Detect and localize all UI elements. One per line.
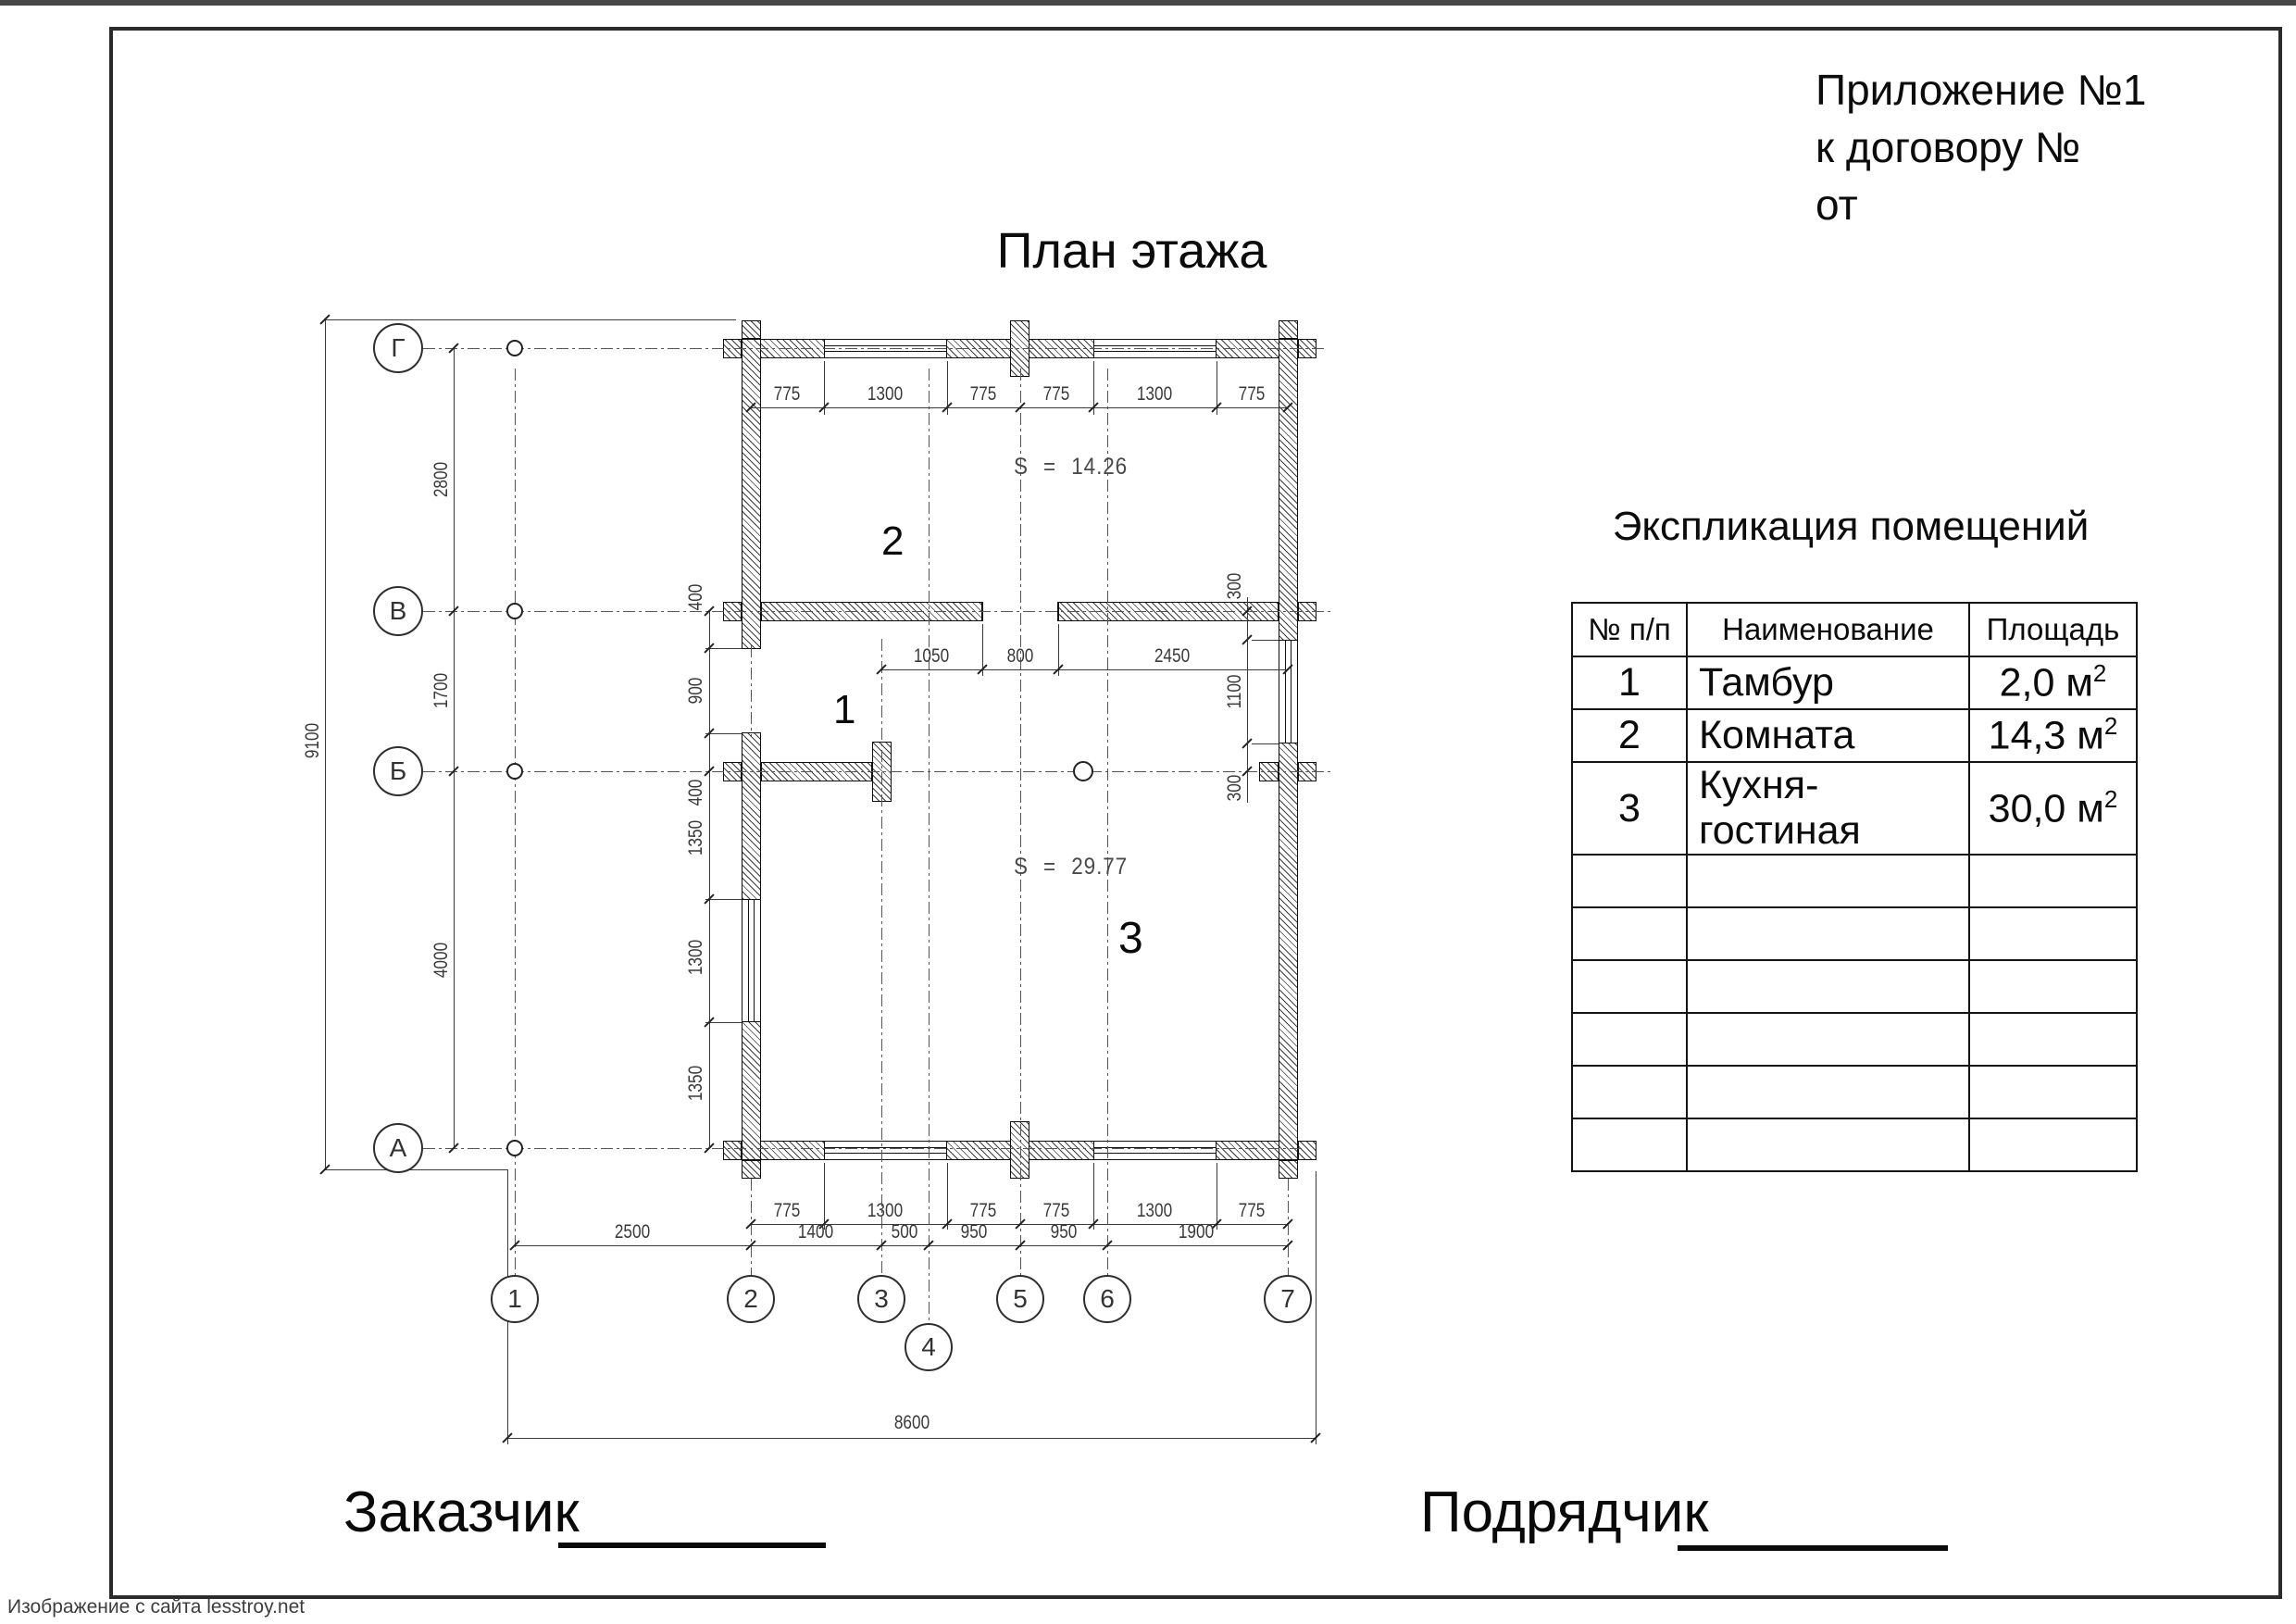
cell-name: Кухня-гостиная [1687,762,1969,855]
cell-num: 2 [1572,709,1687,762]
axis-circle-1: 1 [491,1275,539,1323]
axis-label: 4 [921,1332,936,1362]
window-left [742,899,761,1022]
contractor-label: Подрядчик [1420,1480,1708,1545]
room-number-1: 1 [833,687,855,733]
axis-line-2 [751,1179,752,1275]
dim-text: 775 [970,1200,997,1222]
dim-line [709,611,710,1148]
cell-name: Тамбур [1687,656,1969,709]
area-sup: 2 [2104,785,2117,813]
dim-text: 775 [1239,383,1266,406]
log-end [1279,320,1298,339]
axis-circle-v: В [373,586,423,636]
col-header-num: № п/п [1572,603,1687,656]
appendix-line3: от [1816,181,1858,229]
cell-num: 3 [1572,762,1687,855]
ext-line [1252,743,1279,744]
dim-text: 1700 [430,673,453,708]
table-empty-row [1572,855,2137,907]
area-sup: 2 [2104,712,2117,740]
dim-text: 950 [961,1221,988,1243]
site-watermark: Изображение с сайта lesstroy.net [7,1596,305,1618]
axis-label: 1 [507,1284,522,1314]
table-empty-row [1572,1066,2137,1118]
dim-text: 775 [1043,383,1070,406]
dim-text: 1300 [867,383,903,406]
axis-circle-g: Г [373,323,423,373]
axis-line-4 [929,369,930,1323]
customer-signature-line [558,1543,826,1548]
room2-area-label: S = 14.26 [1014,454,1128,481]
ext-line [705,899,742,900]
dim-text: 1400 [798,1221,833,1243]
ext-line [705,733,742,734]
table-row: 2 Комната 14,3 м2 [1572,709,2137,762]
appendix-line1: Приложение №1 [1816,66,2147,114]
axis-line-a [423,1148,1305,1149]
room3-area-label: S = 29.77 [1014,854,1128,881]
log-end [1298,1141,1316,1160]
dim-text: 775 [1239,1200,1266,1222]
plan-title: План этажа [880,222,1384,280]
axis-label: 6 [1100,1284,1115,1314]
dim-text: 1900 [1179,1221,1214,1243]
table-empty-row [1572,1013,2137,1066]
ext-line [325,1169,508,1170]
axis-circle-3: 3 [857,1275,905,1323]
dim-line [454,348,455,1148]
dim-text: 9100 [302,723,324,758]
dim-text: 1050 [914,645,949,668]
area-sup: 2 [2093,659,2106,687]
cell-name: Комната [1687,709,1969,762]
ext-line [1217,1163,1217,1230]
room-table: № п/п Наименование Площадь 1 Тамбур 2,0 … [1571,602,2138,1172]
axis-label: Г [391,333,405,363]
log-end [742,1160,761,1179]
axis-line-7 [1288,1179,1289,1275]
room-number-2: 2 [881,518,904,565]
ext-line [824,1163,825,1230]
dim-text: 1350 [685,820,707,856]
dim-text: 2450 [1154,645,1190,668]
dim-line [325,319,326,1169]
axis-label: 2 [743,1284,758,1314]
axis-label: Б [390,756,406,786]
dim-text: 775 [774,383,801,406]
contractor-signature-line [1678,1545,1948,1551]
dim-text: 300 [1224,775,1246,802]
appendix-line2: к договору № [1816,123,2080,171]
axis-label: В [390,596,407,626]
sheet: Приложение №1к договору №от План этажа [0,0,2296,1624]
dim-text: 800 [1007,645,1034,668]
axis-line-g [423,348,1324,349]
log-end [742,320,761,339]
axis-line-v [423,611,1333,612]
dim-text: 775 [1043,1200,1070,1222]
table-title: Экспликация помещений [1565,504,2137,550]
dim-text: 1300 [867,1200,903,1222]
axis-circle-b: Б [373,746,423,796]
axis-label: 7 [1280,1284,1295,1314]
dim-text: 500 [892,1221,918,1243]
ext-line [947,1163,948,1230]
log-end [723,1141,742,1160]
dim-text: 1300 [1137,1200,1172,1222]
col-header-area: Площадь [1969,603,2137,656]
dim-text: 4000 [430,943,453,978]
table-empty-row [1572,960,2137,1013]
axis-circle-7: 7 [1264,1275,1312,1323]
area-value: 2,0 м [2000,661,2093,706]
dim-text: 2800 [430,462,453,497]
window-right [1279,640,1298,743]
table-empty-row [1572,1118,2137,1171]
dim-text: 1300 [1137,383,1172,406]
axis-line-5 [1020,369,1021,1275]
log-end [1279,1160,1298,1179]
ext-line [705,1022,742,1023]
axis-circle-a: А [373,1123,423,1173]
dim-text: 300 [1224,573,1246,600]
area-value: 30,0 м [1989,786,2104,831]
axis-circle-5: 5 [996,1275,1044,1323]
dim-text: 2500 [615,1221,650,1243]
cell-area: 14,3 м2 [1969,709,2137,762]
plan-node-circle [1073,761,1093,781]
axis-node [506,763,523,780]
dim-text: 775 [970,383,997,406]
dim-text: 950 [1051,1221,1078,1243]
axis-circle-6: 6 [1083,1275,1131,1323]
axis-circle-2: 2 [727,1275,775,1323]
axis-line-6 [1107,369,1108,1275]
axis-node [506,340,523,356]
dim-text: 400 [685,780,707,806]
dim-text: 8600 [894,1412,930,1434]
scan-edge-strip [0,0,2296,6]
dim-line [881,669,1288,670]
dim-line [507,1438,1316,1439]
dim-text: 775 [774,1200,801,1222]
cell-area: 30,0 м2 [1969,762,2137,855]
axis-line-2-door [751,645,752,736]
axis-line-3 [881,639,882,1275]
room-number-3: 3 [1118,913,1143,964]
area-value: 14,3 м [1989,714,2104,758]
axis-circle-4: 4 [905,1323,953,1371]
dim-line [515,1245,1288,1246]
wall-right [1279,339,1298,1160]
axis-node [506,603,523,619]
table-header-row: № п/п Наименование Площадь [1572,603,2137,656]
dim-text: 1350 [685,1066,707,1101]
cell-num: 1 [1572,656,1687,709]
axis-label: 5 [1013,1284,1028,1314]
ext-line [1316,1171,1316,1444]
axis-node [506,1140,523,1156]
axis-label: 3 [874,1284,889,1314]
wall-left [742,339,761,1160]
cell-area: 2,0 м2 [1969,656,2137,709]
table-row: 1 Тамбур 2,0 м2 [1572,656,2137,709]
axis-line-b [423,771,1333,772]
customer-label: Заказчик [343,1480,580,1545]
table-row: 3 Кухня-гостиная 30,0 м2 [1572,762,2137,855]
col-header-name: Наименование [1687,603,1969,656]
dim-text: 900 [685,678,707,705]
dim-text: 1100 [1224,674,1246,708]
appendix-note: Приложение №1к договору №от [1816,61,2147,233]
dim-text: 400 [685,584,707,611]
dim-text: 1300 [685,940,707,975]
ext-line [705,648,742,649]
ext-line [325,319,736,320]
window-bottom-2 [1093,1141,1217,1160]
ext-line [1093,1163,1094,1230]
ext-line [1252,640,1279,641]
axis-label: А [390,1133,407,1163]
table-empty-row [1572,907,2137,960]
